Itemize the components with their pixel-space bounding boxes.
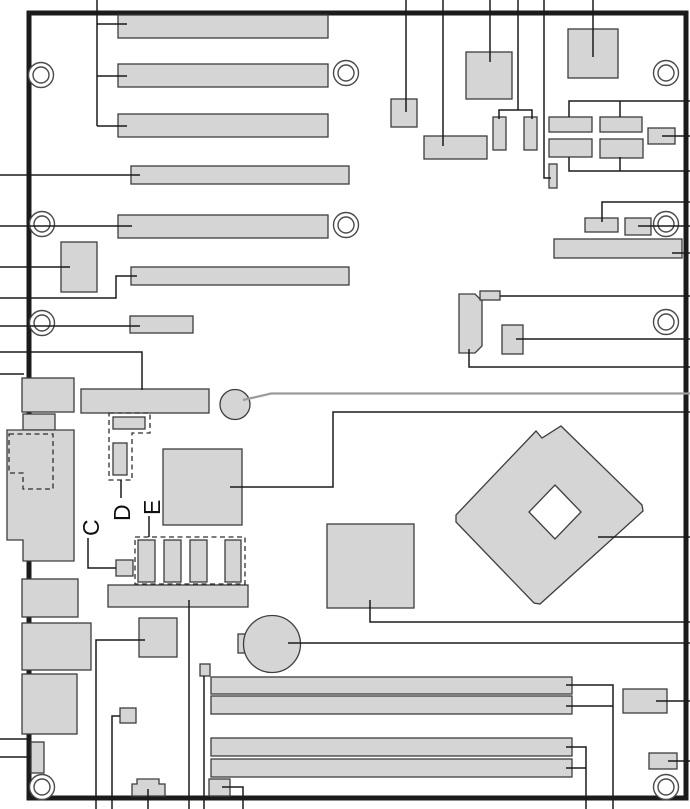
jumper-bottom-left [120,708,136,723]
callout-jumper-bottom-left [112,716,120,809]
mounting-hole [654,61,679,86]
expansion-slot-5 [118,215,328,238]
expansion-slot-2 [118,64,328,87]
callout-ic-chip-chipset [370,600,690,622]
wide-edge-connector [554,239,682,258]
expansion-slot-4 [131,166,349,184]
callout-round-component [243,394,690,401]
header-grid-b [600,117,642,132]
io-connector-b [23,414,55,430]
cpu-socket [456,426,643,604]
callout-header-grid-bottom [569,157,690,171]
dimm-slot-1 [211,677,572,694]
mounting-hole [30,212,55,237]
battery-cell [244,616,301,673]
coin-cell-battery [238,616,301,673]
mounting-hole [30,775,55,800]
mounting-hole [29,63,54,88]
io-connector-block [7,430,74,561]
mounting-hole [334,61,359,86]
back-panel-connector-4 [31,742,44,773]
small-header-bottom [200,664,210,676]
jumper-c-block [116,560,133,576]
ic-chip-chipset [327,524,414,608]
back-panel-connector-1 [22,579,78,617]
io-connector-a [22,378,74,412]
header-grid-c [549,139,592,157]
header-e-1 [138,540,155,582]
callout-ic-chip-center [230,412,690,487]
ic-chip-mid-top [466,52,512,99]
mounting-hole [654,310,679,335]
ic-chip-bottom-left [139,618,177,657]
back-panel-connector-2 [22,623,91,670]
mounting-hole [334,213,359,238]
vertical-header-3 [549,164,557,188]
header-e-3 [190,540,207,582]
mounting-hole [654,775,679,800]
mounting-hole [30,311,55,336]
chamfered-connector [459,294,482,353]
header-e-2 [164,540,181,582]
dimm-slot-4 [211,759,572,777]
mounting-hole [654,212,679,237]
motherboard-diagram-canvas: C D E [0,0,690,809]
expansion-slot-6 [131,267,349,285]
jumper-d-horizontal [113,417,145,429]
label-d: D [109,504,135,521]
components [7,15,682,796]
dimm-slot-2 [211,696,572,714]
short-header-slot [130,316,193,333]
expansion-slot-1 [118,15,328,38]
round-component [220,390,250,420]
header-rect-top [424,136,487,159]
back-panel-connector-3 [22,674,77,734]
long-header-mid-left [81,389,209,413]
label-e: E [139,500,165,515]
callout-labels: C D E [78,500,165,536]
motherboard-diagram: C D E [0,0,690,809]
header-e-4 [225,540,241,582]
expansion-slot-3 [118,114,328,137]
label-c: C [78,519,104,536]
vertical-header-1 [493,117,506,150]
vertical-header-2 [524,117,537,150]
connector-tab [480,291,500,300]
front-panel-header [108,585,248,607]
dimm-slot-3 [211,738,572,756]
header-grid-d [600,139,643,158]
header-grid-a [549,117,592,132]
ic-chip-small-top [391,99,417,127]
callout-label-c [88,538,116,568]
callout-header-grid-top [569,101,690,117]
jumper-d-vertical [113,443,127,475]
